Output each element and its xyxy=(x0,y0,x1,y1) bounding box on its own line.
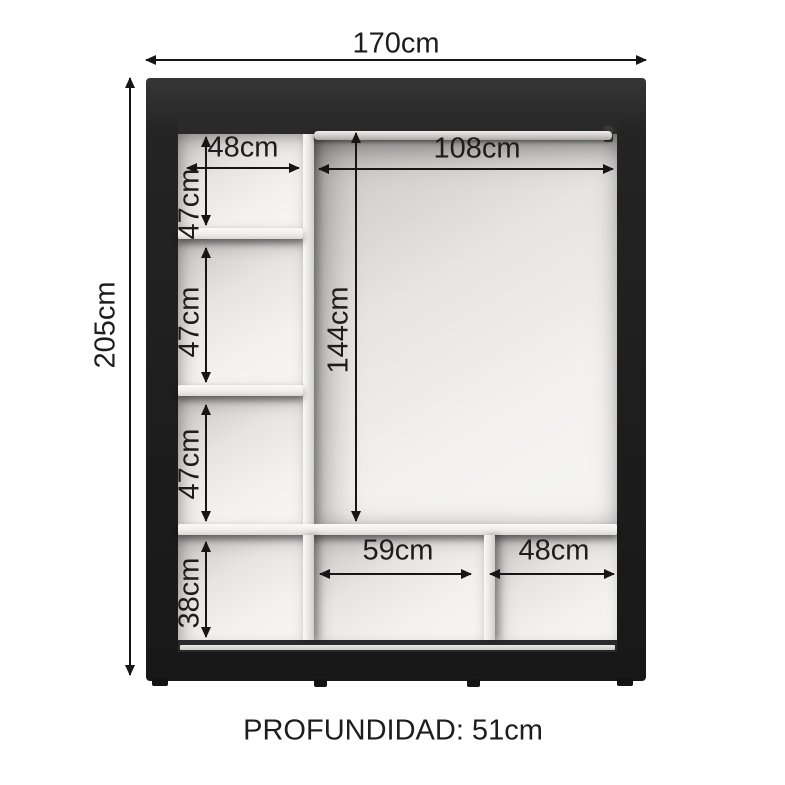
hanging-compartment xyxy=(314,134,617,524)
total-width-label: 170cm xyxy=(352,30,439,59)
bottom-left-height-arrow xyxy=(205,542,207,637)
left-compartment-1-height-arrow xyxy=(205,137,207,225)
hanging-height-label: 144cm xyxy=(325,286,354,373)
left-compartment-2-height-label: 47cm xyxy=(176,287,205,358)
rod-width-arrow xyxy=(319,168,613,170)
left-compartment-3-height-label: 47cm xyxy=(176,429,205,500)
bottom-right-width-arrow xyxy=(490,573,614,575)
wardrobe-foot xyxy=(152,678,168,686)
depth-label: PROFUNDIDAD: 51cm xyxy=(243,715,543,748)
total-width-arrow xyxy=(146,59,646,61)
left-compartment-2-height-arrow xyxy=(205,248,207,382)
bottom-middle-width-label: 59cm xyxy=(363,537,434,566)
hanging-height-arrow xyxy=(355,133,357,521)
vertical-divider-bottom-1 xyxy=(303,535,314,640)
rod-width-label: 108cm xyxy=(433,135,520,164)
wardrobe-foot xyxy=(314,679,327,687)
left-compartment-3-height-arrow xyxy=(205,405,207,521)
shelf-bottom-full-width xyxy=(178,524,617,535)
wardrobe-dimension-diagram: 170cm 205cm 48cm 47cm 47cm 47cm 38cm 108… xyxy=(0,0,785,785)
left-compartment-1-height-label: 47cm xyxy=(176,169,205,240)
left-shelf-width-label: 48cm xyxy=(208,134,279,163)
base-panel-lip xyxy=(180,645,615,650)
bottom-right-width-label: 48cm xyxy=(519,537,590,566)
bottom-left-height-label: 38cm xyxy=(176,558,205,629)
bottom-middle-width-arrow xyxy=(320,573,471,575)
vertical-divider-main xyxy=(303,134,314,524)
total-height-label: 205cm xyxy=(92,281,121,368)
wardrobe-foot xyxy=(617,678,633,686)
wardrobe-foot xyxy=(467,679,480,687)
shelf-left-2 xyxy=(178,385,303,396)
vertical-divider-bottom-2 xyxy=(484,535,495,640)
total-height-arrow xyxy=(129,78,131,675)
